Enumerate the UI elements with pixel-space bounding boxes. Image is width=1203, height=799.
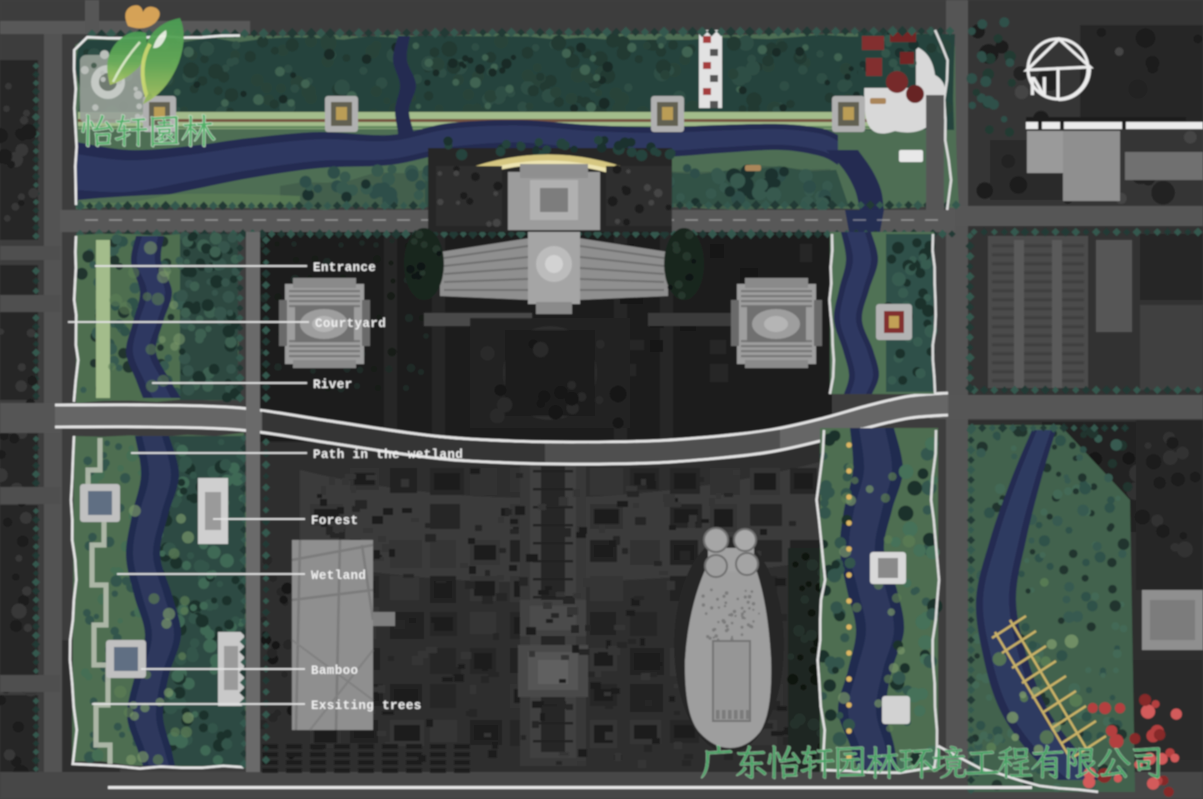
svg-text:Bamboo: Bamboo <box>311 664 358 678</box>
svg-text:Courtyard: Courtyard <box>315 317 386 331</box>
svg-text:Forest: Forest <box>311 514 358 528</box>
svg-text:Exsiting trees: Exsiting trees <box>311 699 422 713</box>
svg-text:River: River <box>313 378 353 392</box>
svg-text:Entrance: Entrance <box>313 261 376 275</box>
svg-text:Path in the wetland: Path in the wetland <box>313 448 463 462</box>
svg-text:Wetland: Wetland <box>311 569 366 583</box>
svg-text:N: N <box>1029 71 1048 101</box>
